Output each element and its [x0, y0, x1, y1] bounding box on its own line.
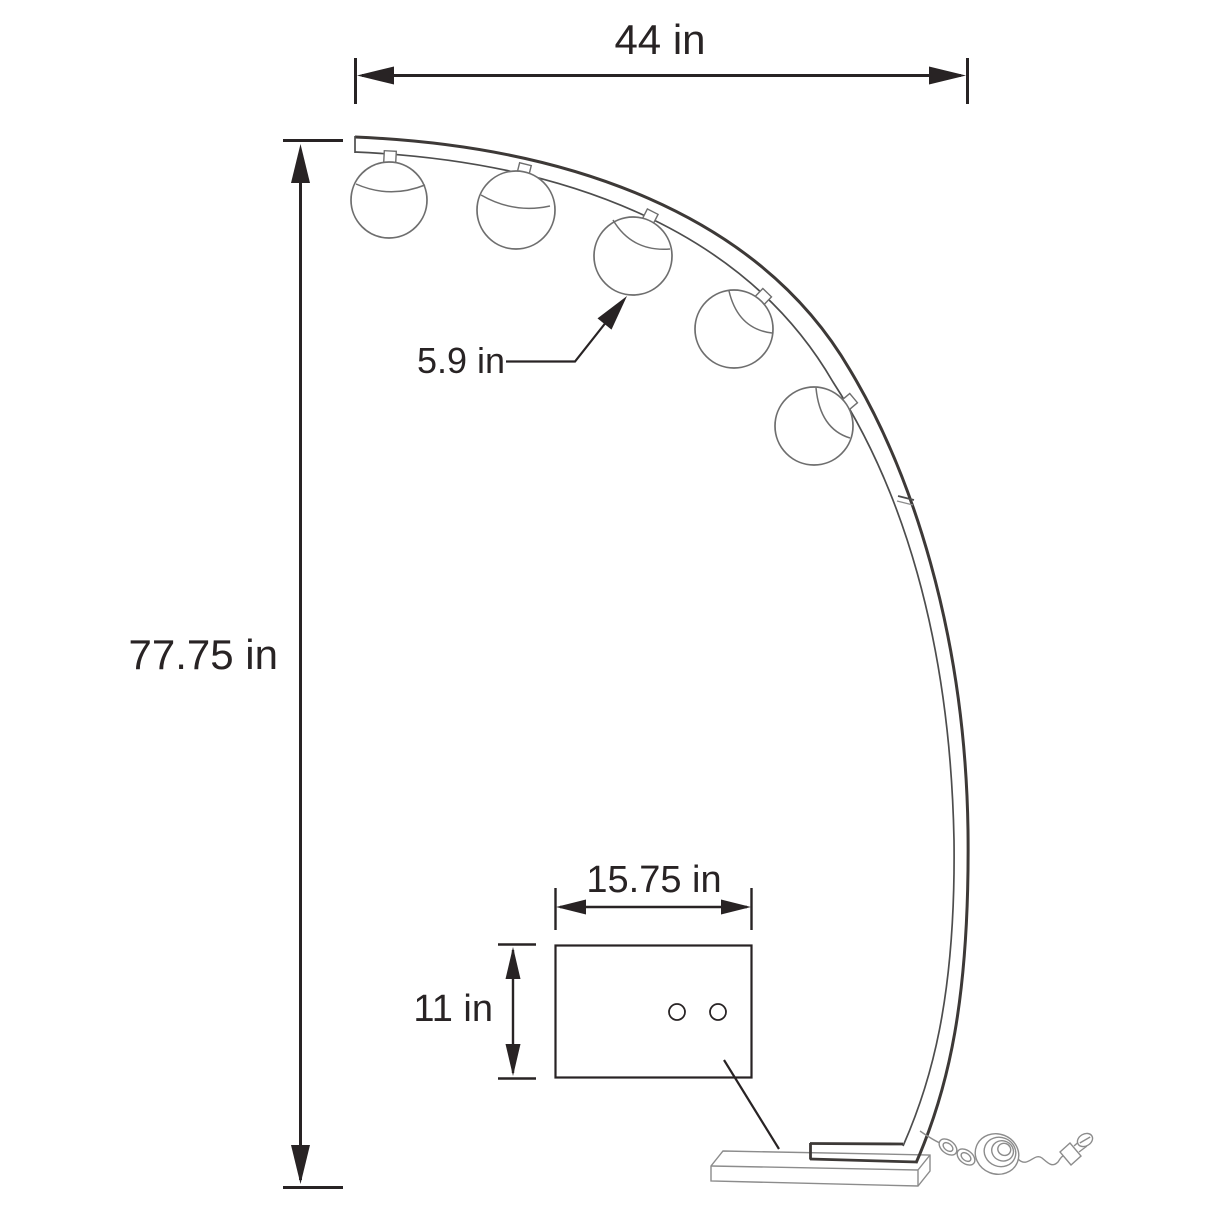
arc-floor-lamp-dimension-diagram: 15.75 in 11 in 44 in 77.75 in 5.9 in	[0, 0, 1214, 1214]
cord-wave	[1018, 1156, 1063, 1165]
arrowhead-left	[357, 67, 394, 85]
globe-4	[695, 289, 773, 368]
base-hole-1	[669, 1004, 685, 1020]
annotation-leader-line	[506, 321, 607, 362]
arrowhead-top	[506, 947, 521, 979]
overall-width-label: 44 in	[614, 16, 705, 63]
overall-height-label: 77.75 in	[129, 631, 278, 678]
base-depth-dimension: 11 in	[413, 945, 536, 1079]
cord-connector-2	[954, 1146, 978, 1169]
arrowhead-top	[291, 144, 310, 183]
globe-3	[594, 209, 672, 295]
dimension-diagram-page: 15.75 in 11 in 44 in 77.75 in 5.9 in	[0, 0, 1214, 1214]
arrowhead-left	[556, 900, 586, 915]
globe-diameter-label: 5.9 in	[417, 340, 505, 381]
cord-connector-1	[936, 1136, 960, 1159]
globe-5-shade	[775, 387, 853, 465]
arc-joint-upper	[898, 496, 914, 500]
globe-1-shade	[351, 162, 427, 238]
globe-diameter-annotation: 5.9 in	[417, 296, 627, 381]
base-width-dimension: 15.75 in	[556, 859, 752, 930]
arrowhead-bottom	[506, 1044, 521, 1076]
overall-width-dimension: 44 in	[356, 16, 968, 104]
power-cord-assembly	[920, 1127, 1095, 1181]
globe-3-shade	[594, 217, 672, 295]
arrowhead-right	[929, 67, 966, 85]
power-cord	[920, 1131, 940, 1143]
globe-5	[775, 387, 857, 465]
plug-cap	[1075, 1131, 1095, 1149]
globe-4-shade	[695, 290, 773, 368]
foot-bar-top	[810, 1144, 903, 1145]
arrowhead-bottom	[291, 1145, 310, 1184]
globe-2	[477, 163, 555, 249]
base-depth-label: 11 in	[413, 988, 493, 1030]
base-width-label: 15.75 in	[586, 859, 721, 901]
base-detail-rectangle	[556, 946, 752, 1078]
arrowhead-right	[721, 900, 751, 915]
annotation-arrowhead	[598, 296, 628, 330]
overall-height-dimension: 77.75 in	[129, 141, 343, 1188]
plug-body	[1060, 1143, 1081, 1165]
globe-1	[351, 151, 427, 238]
foot-switch	[969, 1127, 1025, 1181]
globe-2-shade	[477, 171, 555, 249]
base-slab	[711, 1151, 930, 1186]
base-hole-2	[710, 1004, 726, 1020]
power-plug	[1060, 1131, 1095, 1165]
base-detail: 15.75 in 11 in	[413, 859, 779, 1149]
